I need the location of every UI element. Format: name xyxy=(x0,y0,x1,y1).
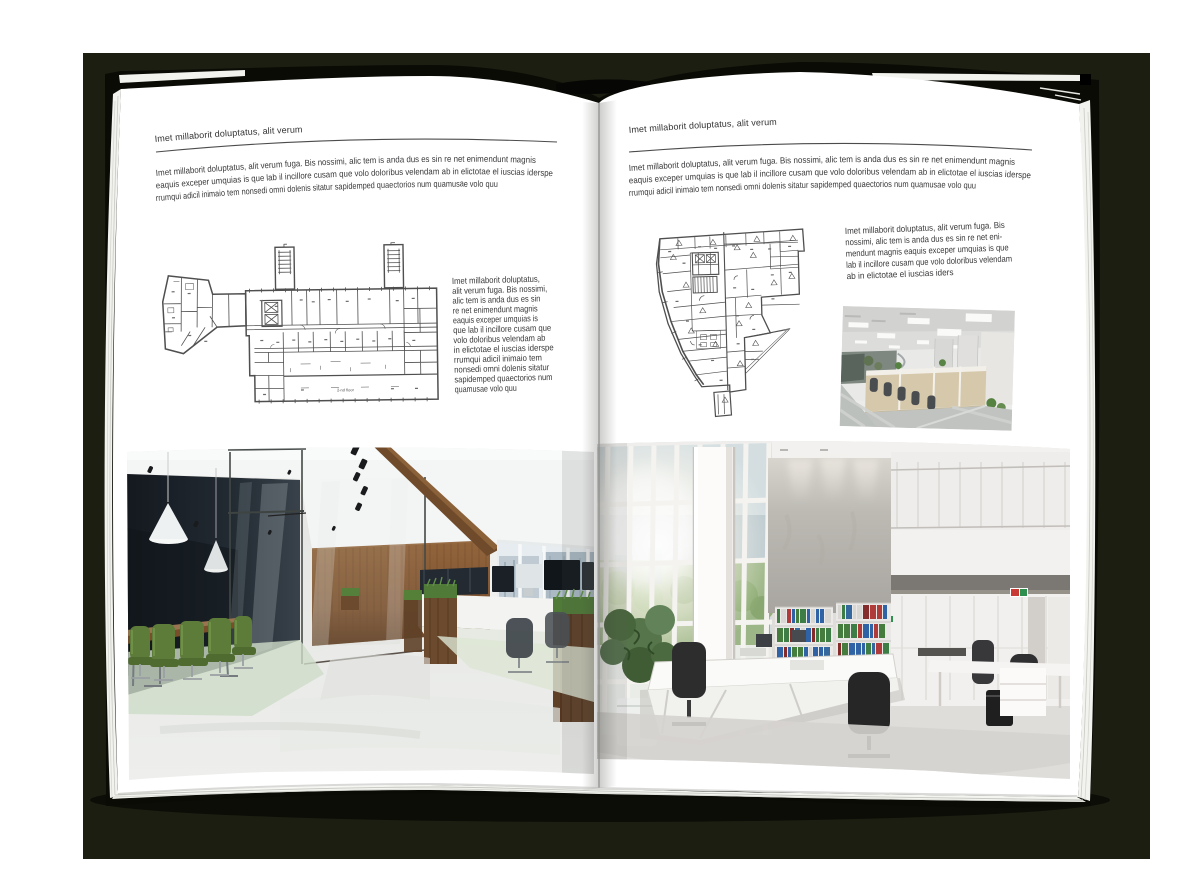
svg-text:quamusae volo quu: quamusae volo quu xyxy=(455,383,517,395)
svg-text:2-nd floor: 2-nd floor xyxy=(337,387,355,392)
